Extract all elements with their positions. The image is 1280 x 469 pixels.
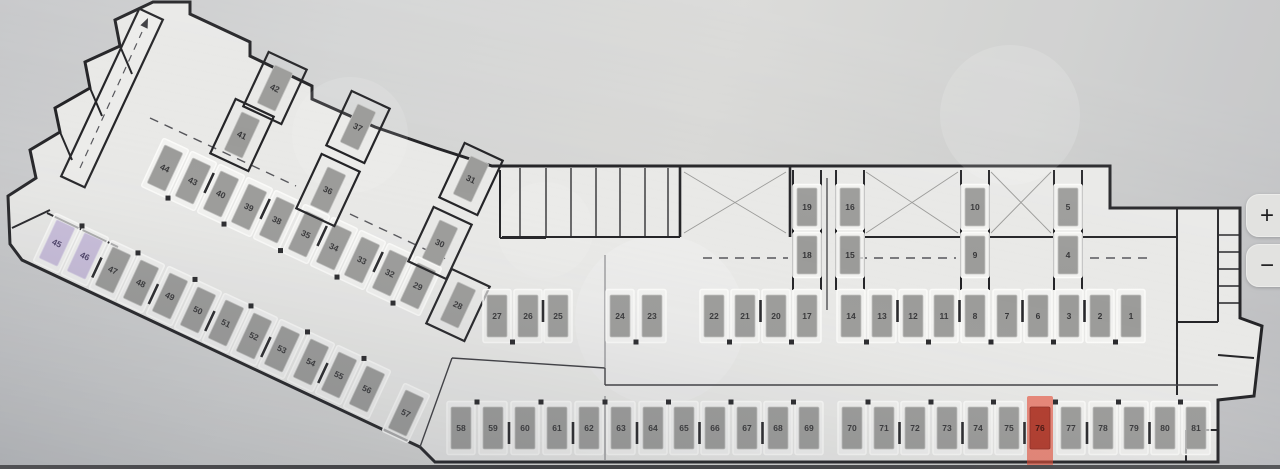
parking-spot-64[interactable]: 64 [639,402,667,455]
column-mark [666,400,671,405]
spot-number: 6 [1036,311,1041,321]
spot-number: 4 [1066,250,1071,260]
spot-number: 14 [846,311,856,321]
column-mark [166,196,171,201]
bay-divider-bar [1023,422,1026,444]
parking-spot-5[interactable]: 5 [1054,185,1082,230]
column-mark [603,400,608,405]
parking-spot-26[interactable]: 26 [514,290,542,343]
spot-number: 20 [771,311,781,321]
zoom-in-button[interactable]: + [1246,194,1280,237]
parking-spot-3[interactable]: 3 [1055,290,1083,343]
column-mark [361,356,366,361]
spot-number: 65 [679,423,689,433]
spot-number: 10 [970,202,980,212]
column-mark [1113,340,1118,345]
spot-number: 62 [584,423,594,433]
spot-number: 75 [1004,423,1014,433]
spot-number: 5 [1066,202,1071,212]
parking-spot-73[interactable]: 73 [933,402,961,455]
spot-number: 8 [973,311,978,321]
parking-spot-15[interactable]: 15 [836,233,864,278]
bay-divider-bar [572,422,575,444]
zoom-out-button[interactable]: − [1246,244,1280,287]
spot-number: 80 [1160,423,1170,433]
column-mark [192,277,197,282]
parking-spot-1[interactable]: 1 [1117,290,1145,343]
parking-spot-76[interactable]: 76 [1027,396,1053,466]
bay-divider-bar [636,422,639,444]
spot-number: 74 [973,423,983,433]
parking-spot-65[interactable]: 65 [670,402,698,455]
spot-number: 76 [1035,423,1045,433]
spot-number: 21 [740,311,750,321]
spot-number: 23 [647,311,657,321]
column-mark [929,400,934,405]
column-mark [1051,340,1056,345]
parking-spot-11[interactable]: 11 [930,290,958,343]
bay-divider-bar [896,300,899,322]
bay-divider-bar [761,422,764,444]
bay-divider-bar [1021,300,1024,322]
parking-spot-80[interactable]: 80 [1151,402,1179,455]
spot-number: 18 [802,250,812,260]
spot-number: 66 [710,423,720,433]
column-mark [634,340,639,345]
column-mark [1116,400,1121,405]
spot-number: 81 [1191,423,1201,433]
parking-spot-72[interactable]: 72 [901,402,929,455]
parking-spot-7[interactable]: 7 [993,290,1021,343]
spot-number: 24 [615,311,625,321]
column-mark [135,250,140,255]
column-mark [335,275,340,280]
parking-spot-4[interactable]: 4 [1054,233,1082,278]
parking-spot-62[interactable]: 62 [575,402,603,455]
spot-number: 22 [709,311,719,321]
column-mark [1178,400,1183,405]
bay-divider-bar [542,300,545,322]
spot-number: 70 [847,423,857,433]
parking-spot-10[interactable]: 10 [961,185,989,230]
parking-spot-60[interactable]: 60 [511,402,539,455]
spot-number: 78 [1098,423,1108,433]
spot-number: 68 [773,423,783,433]
parking-spot-20[interactable]: 20 [762,290,790,343]
parking-spot-16[interactable]: 16 [836,185,864,230]
spot-number: 63 [616,423,626,433]
column-mark [278,248,283,253]
parking-spot-77[interactable]: 77 [1057,402,1085,455]
parking-spot-8[interactable]: 8 [961,290,989,343]
parking-spot-69[interactable]: 69 [795,402,823,455]
parking-spot-14[interactable]: 14 [837,290,865,343]
parking-spot-24[interactable]: 24 [606,290,634,343]
parking-spot-63[interactable]: 63 [607,402,635,455]
spot-number: 19 [802,202,812,212]
bay-divider-bar [1083,300,1086,322]
column-mark [391,301,396,306]
parking-spot-74[interactable]: 74 [964,402,992,455]
column-mark [926,340,931,345]
parking-spot-12[interactable]: 12 [899,290,927,343]
parking-spot-19[interactable]: 19 [793,185,821,230]
bay-divider-bar [508,422,511,444]
spot-number: 77 [1066,423,1076,433]
spot-number: 25 [553,311,563,321]
parking-spot-68[interactable]: 68 [764,402,792,455]
spot-number: 59 [488,423,498,433]
spot-number: 11 [940,311,949,321]
spot-number: 12 [908,311,918,321]
column-mark [79,223,84,228]
parking-spot-66[interactable]: 66 [701,402,729,455]
spot-number: 17 [802,311,812,321]
spot-number: 60 [520,423,530,433]
spot-number: 71 [879,423,889,433]
parking-spot-58[interactable]: 58 [447,402,475,455]
parking-spot-78[interactable]: 78 [1089,402,1117,455]
floor-plan-svg: 4443403938353433322942413736313028454647… [0,0,1280,469]
bay-divider-bar [1086,422,1089,444]
column-mark [989,340,994,345]
spot-number: 13 [877,311,887,321]
column-mark [864,340,869,345]
spot-number: 7 [1005,311,1010,321]
column-mark [222,222,227,227]
spot-number: 58 [456,423,466,433]
column-mark [729,400,734,405]
column-mark [1053,400,1058,405]
parking-spot-61[interactable]: 61 [543,402,571,455]
photo-bottom-edge [0,465,1280,469]
parking-spot-9[interactable]: 9 [961,233,989,278]
spot-number: 9 [973,250,978,260]
parking-spot-21[interactable]: 21 [731,290,759,343]
spot-number: 79 [1129,423,1139,433]
bay-divider-bar [898,422,901,444]
spot-number: 27 [492,311,502,321]
column-mark [475,400,480,405]
spot-number: 69 [804,423,814,433]
spot-number: 15 [845,250,855,260]
column-mark [789,340,794,345]
spot-number: 73 [942,423,952,433]
spot-number: 2 [1098,311,1103,321]
spot-number: 3 [1067,311,1072,321]
parking-spot-6[interactable]: 6 [1024,290,1052,343]
parking-spot-70[interactable]: 70 [838,402,866,455]
spot-number: 67 [742,423,752,433]
floor-plan-viewport: 4443403938353433322942413736313028454647… [0,0,1280,469]
parking-spot-23[interactable]: 23 [638,290,666,343]
parking-spot-71[interactable]: 71 [870,402,898,455]
spot-number: 1 [1129,311,1134,321]
spot-number: 64 [648,423,658,433]
column-mark [866,400,871,405]
spot-number: 26 [523,311,533,321]
parking-spot-17[interactable]: 17 [793,290,821,343]
parking-spot-81[interactable]: 81 [1182,402,1210,455]
column-mark [248,303,253,308]
parking-spot-67[interactable]: 67 [733,402,761,455]
bay-divider-bar [759,300,762,322]
bay-divider-bar [958,300,961,322]
spot-number: 61 [552,423,562,433]
bay-divider-bar [961,422,964,444]
parking-spot-59[interactable]: 59 [479,402,507,455]
column-mark [991,400,996,405]
bay-divider-bar [698,422,701,444]
parking-spot-18[interactable]: 18 [793,233,821,278]
parking-spot-27[interactable]: 27 [483,290,511,343]
bay-divider-bar [1148,422,1151,444]
column-mark [727,340,732,345]
parking-spot-2[interactable]: 2 [1086,290,1114,343]
column-mark [539,400,544,405]
parking-spot-79[interactable]: 79 [1120,402,1148,455]
parking-spot-22[interactable]: 22 [700,290,728,343]
parking-spot-13[interactable]: 13 [868,290,896,343]
column-mark [305,329,310,334]
column-mark [791,400,796,405]
spot-number: 16 [845,202,855,212]
column-mark [510,340,515,345]
parking-spot-25[interactable]: 25 [544,290,572,343]
spot-number: 72 [910,423,920,433]
map-zoom-controls: + − [1246,194,1280,287]
parking-spot-75[interactable]: 75 [995,402,1023,455]
